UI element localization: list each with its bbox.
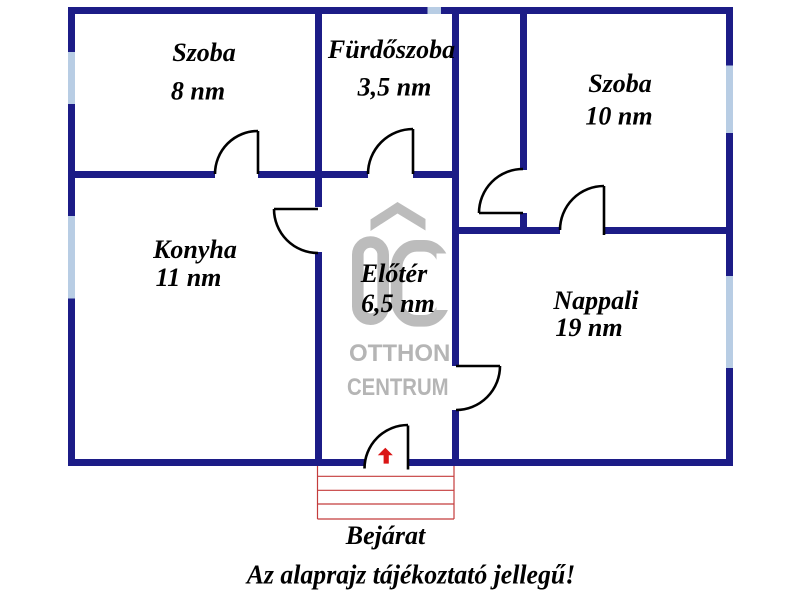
svg-text:Előtér: Előtér xyxy=(360,259,428,288)
svg-text:6,5 nm: 6,5 nm xyxy=(361,289,435,318)
svg-text:Bejárat: Bejárat xyxy=(345,521,426,550)
svg-text:3,5 nm: 3,5 nm xyxy=(357,73,432,102)
svg-text:Fürdőszoba: Fürdőszoba xyxy=(327,35,455,64)
svg-text:11 nm: 11 nm xyxy=(156,263,222,292)
svg-text:Konyha: Konyha xyxy=(152,235,237,264)
svg-text:OTTHON: OTTHON xyxy=(349,340,450,367)
svg-text:8 nm: 8 nm xyxy=(171,77,225,106)
svg-text:Szoba: Szoba xyxy=(588,69,652,98)
svg-text:Nappali: Nappali xyxy=(552,286,639,315)
svg-text:10 nm: 10 nm xyxy=(585,102,652,131)
svg-text:Az alaprajz tájékoztató jelleg: Az alaprajz tájékoztató jellegű! xyxy=(245,559,575,590)
svg-text:19 nm: 19 nm xyxy=(555,313,622,342)
svg-text:CENTRUM: CENTRUM xyxy=(347,373,449,400)
svg-text:Szoba: Szoba xyxy=(172,38,236,67)
